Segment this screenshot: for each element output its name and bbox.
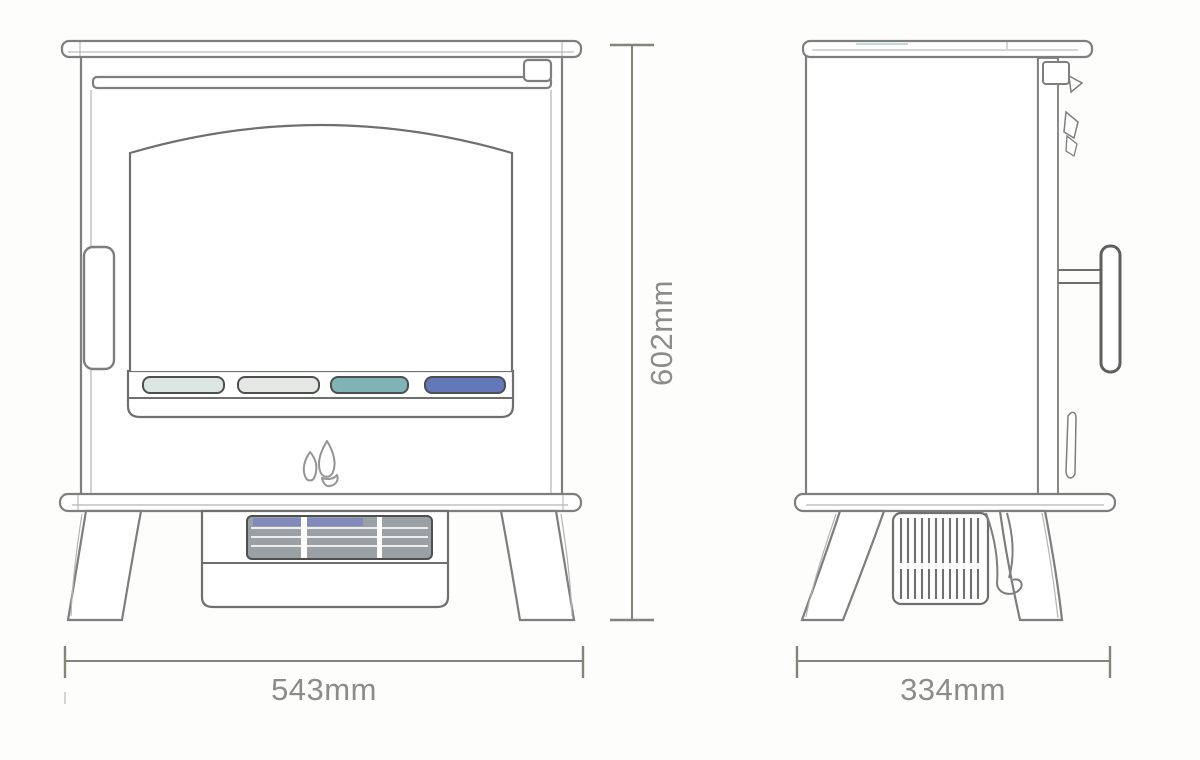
dimension-width: 543mm: [65, 646, 583, 707]
door-glass-arch: [130, 125, 512, 371]
front-left-leg: [68, 511, 141, 620]
vent-slot-2: [238, 377, 319, 393]
front-switch-block: [524, 60, 551, 81]
side-body: [806, 56, 1038, 502]
grille-divider-1: [301, 517, 307, 558]
depth-dimension-label: 334mm: [900, 672, 1006, 707]
side-door-latch: [1066, 412, 1076, 478]
front-door-handle: [84, 247, 114, 369]
grille-blue-tint: [253, 518, 363, 526]
vent-slot-1: [143, 377, 224, 393]
height-dimension-label: 602mm: [644, 280, 679, 386]
front-right-leg: [501, 511, 574, 620]
width-dimension-label: 543mm: [271, 672, 377, 707]
front-door-window: [128, 125, 513, 417]
dimension-diagram: 602mm 543mm 334mm: [0, 0, 1200, 760]
front-under-rail: [93, 77, 551, 88]
side-hinge-mid-2: [1066, 136, 1077, 156]
vent-slot-4: [425, 377, 505, 393]
side-grille-band: [895, 563, 986, 569]
front-base-plate: [60, 494, 581, 511]
side-heater-box: [893, 513, 988, 604]
vent-slot-3: [331, 377, 408, 393]
front-heater-box: [202, 511, 448, 607]
dimension-depth: 334mm: [797, 646, 1110, 707]
stove-drawing: 602mm 543mm 334mm: [0, 0, 1200, 760]
side-front-leg: [802, 511, 884, 620]
front-top-plate: [62, 41, 581, 57]
side-door-panel: [1038, 58, 1058, 501]
side-base-plate: [795, 494, 1115, 511]
front-view: [60, 41, 581, 620]
dimension-height: 602mm: [610, 45, 679, 620]
side-view: [795, 41, 1120, 620]
side-door-handle: [1058, 246, 1120, 372]
grille-divider-2: [377, 517, 382, 558]
side-top-plate: [803, 41, 1092, 57]
side-hinge-mid: [1064, 112, 1078, 138]
